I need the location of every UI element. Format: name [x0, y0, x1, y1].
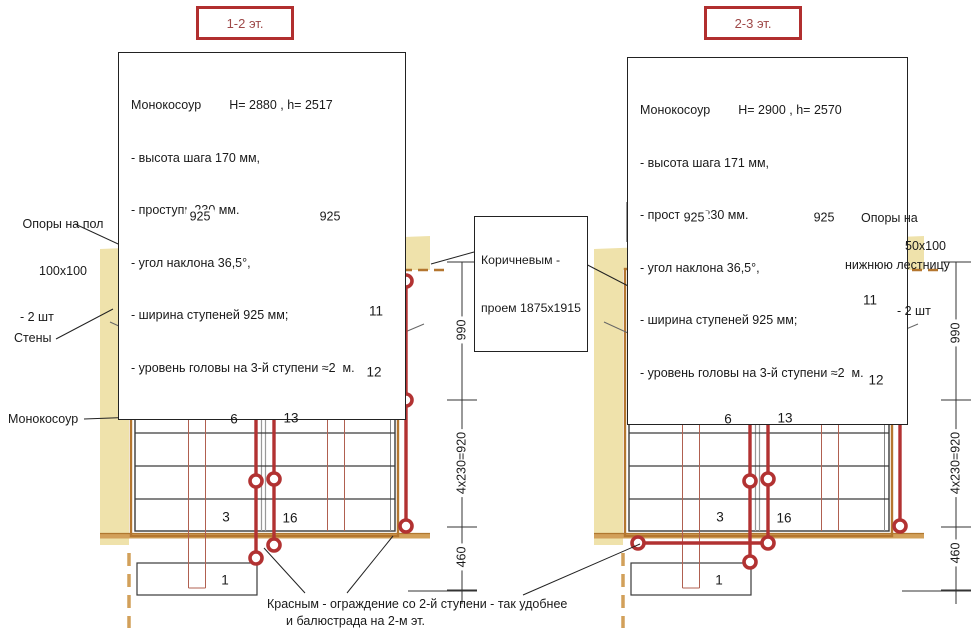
step-number-13: 13 [283, 411, 298, 426]
step-number-1: 1 [715, 573, 723, 588]
floor-tag-left-text: 1-2 эт. [227, 16, 264, 31]
dim-height-right-920: 4x230=920 [949, 429, 964, 497]
dim-width-left-2: 925 [316, 210, 345, 225]
step-number-11: 11 [863, 293, 877, 308]
dim-height-right-460: 460 [949, 540, 964, 567]
label-railing-note-2: и балюстрада на 2-м эт. [286, 614, 425, 629]
label-line: Опоры на пол [10, 217, 116, 233]
spec-line: - высота шага 171 мм, [640, 155, 897, 173]
label-railing-note-1: Красным - ограждение со 2-й ступени - та… [267, 597, 567, 612]
spec-header-right: МонокосоурH= 2900 , h= 2570 [640, 102, 897, 120]
spec-name-left: Монокосоур [131, 98, 201, 112]
label-line: 100x100 [10, 264, 116, 280]
label-line: Коричневым - [481, 252, 581, 268]
label-line: нижнюю лестницу [845, 258, 971, 274]
dim-height-left-990: 990 [455, 317, 470, 344]
spec-box-left: МонокосоурH= 2880 , h= 2517 - высота шаг… [118, 52, 406, 420]
floor-tag-right-text: 2-3 эт. [735, 16, 772, 31]
step-number-13: 13 [777, 411, 792, 426]
label-stringer: Монокосоур [8, 412, 78, 427]
step-number-12: 12 [868, 373, 883, 388]
spec-values-right: H= 2900 , h= 2570 [738, 103, 842, 117]
spec-line: - проступь 230 мм. [131, 202, 395, 220]
step-number-3: 3 [716, 510, 724, 525]
label-line: Опоры на [845, 211, 971, 227]
dim-height-left-460: 460 [455, 544, 470, 571]
stair-plan-sheet: 1-2 эт. 2-3 эт. МонокосоурH= 2880 , h= 2… [0, 0, 971, 638]
dim-width-right-2: 925 [810, 211, 839, 226]
label-walls: Стены [14, 331, 51, 346]
label-opening-box: Коричневым - проем 1875x1915 [474, 216, 588, 352]
dim-width-right-1: 925 [680, 211, 709, 226]
spec-line: - угол наклона 36,5°, [131, 255, 395, 273]
spec-values-left: H= 2880 , h= 2517 [229, 98, 333, 112]
spec-line: - уровень головы на 3-й ступени ≈2 м. [131, 360, 395, 378]
label-line: проем 1875x1915 [481, 300, 581, 316]
dim-width-left-1: 925 [186, 210, 215, 225]
step-number-16: 16 [776, 511, 791, 526]
step-number-6: 6 [230, 412, 238, 427]
label-line: - 2 шт [10, 310, 116, 326]
step-number-12: 12 [366, 365, 381, 380]
label-support-size: 50x100 [905, 239, 946, 254]
spec-line: - ширина ступеней 925 мм; [131, 307, 395, 325]
step-number-6: 6 [724, 412, 732, 427]
floor-tag-right: 2-3 эт. [704, 6, 802, 40]
spec-line: - уровень головы на 3-й ступени ≈2 м. [640, 365, 897, 383]
floor-tag-left: 1-2 эт. [196, 6, 294, 40]
dim-height-right-990: 990 [949, 320, 964, 347]
step-number-16: 16 [282, 511, 297, 526]
step-number-1: 1 [221, 573, 229, 588]
spec-header-left: МонокосоурH= 2880 , h= 2517 [131, 97, 395, 115]
step-number-3: 3 [222, 510, 230, 525]
spec-name-right: Монокосоур [640, 103, 710, 117]
spec-line: - высота шага 170 мм, [131, 150, 395, 168]
dim-height-left-920: 4x230=920 [455, 429, 470, 497]
step-number-11: 11 [369, 304, 383, 319]
